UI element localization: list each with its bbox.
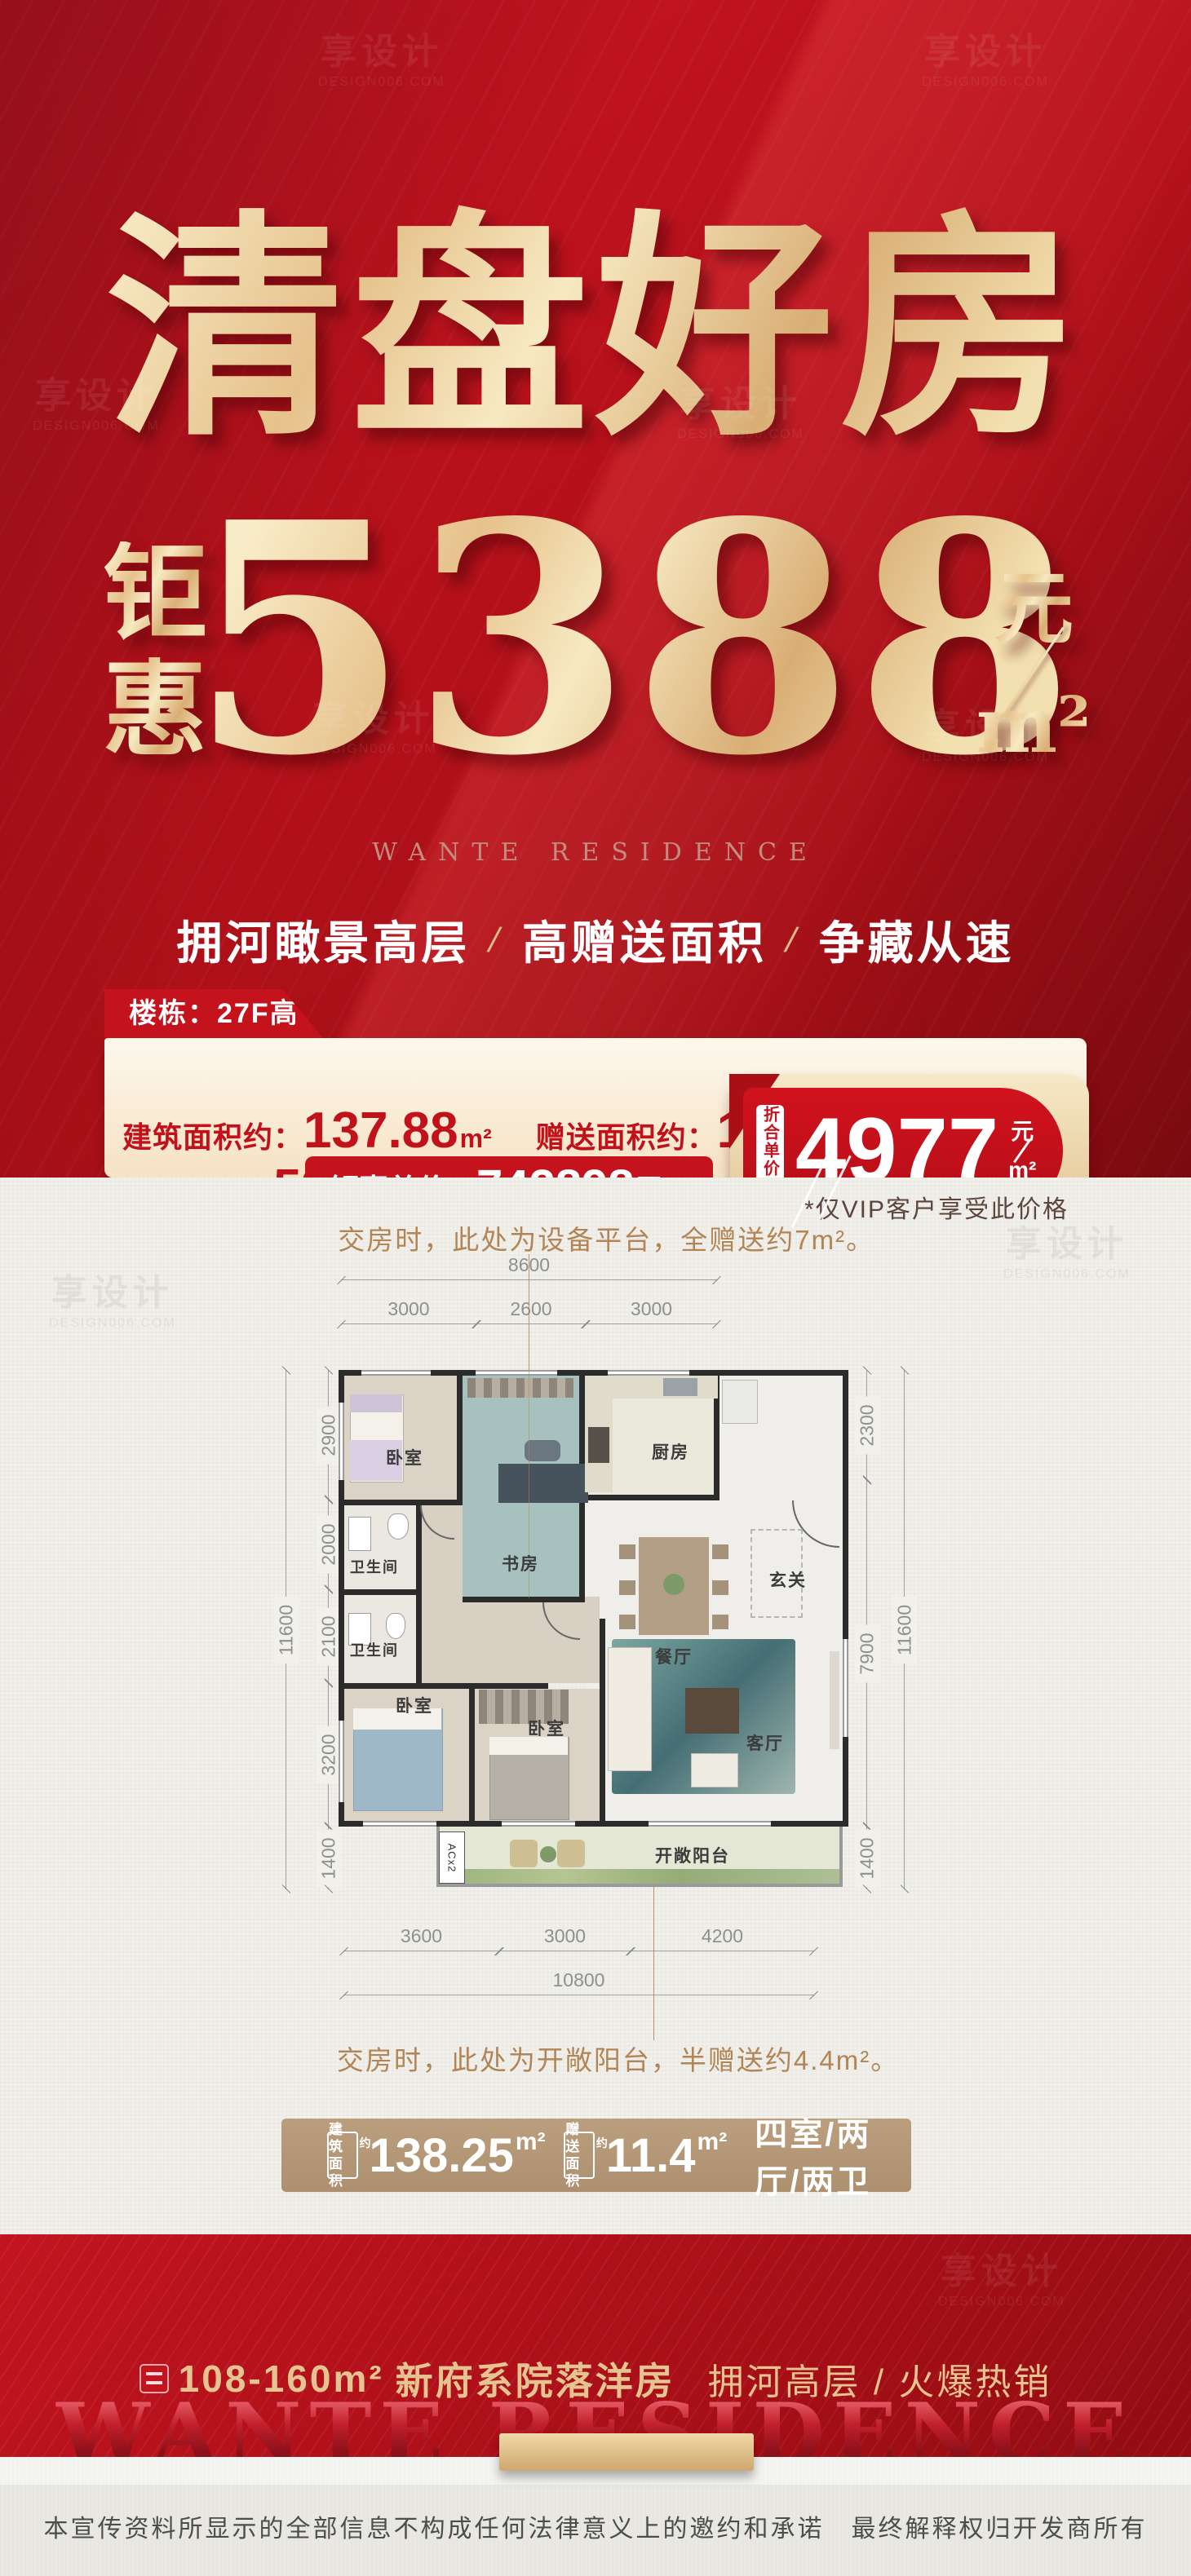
- tagline-separator: /: [781, 921, 804, 960]
- tagline-part: 争藏从速: [819, 907, 1015, 973]
- balcony-chair: [557, 1840, 585, 1867]
- room-label-living: 客厅: [746, 1730, 784, 1755]
- area-summary-bar: 建筑 面积 约 138.25 m² 赠送 面积 约 11.4 m² 四室/两厅/…: [281, 2119, 911, 2192]
- leader-line: [653, 1885, 654, 2040]
- wall: [457, 1370, 463, 1505]
- room-label-bedroom: 卧室: [396, 1693, 433, 1717]
- room-label-hall: 玄关: [769, 1567, 807, 1592]
- chip-line: 面积: [565, 2155, 593, 2190]
- dim-bottom-seg: 3600: [343, 1951, 499, 1951]
- balcony-rail: [839, 1827, 843, 1887]
- room-label-bath: 卫生间: [350, 1556, 399, 1577]
- hero-section: 享设计DESIGN006.COM 享设计DESIGN006.COM 享设计DES…: [0, 0, 1191, 1178]
- sofa: [608, 1647, 652, 1771]
- window: [502, 1821, 575, 1827]
- brand-name: WANTE RESIDENCE: [0, 838, 1191, 867]
- chip-line: 面积: [329, 2155, 356, 2190]
- dim-bottom-seg: 4200: [631, 1951, 814, 1951]
- dining-chair: [619, 1615, 635, 1629]
- balcony-plant: [540, 1846, 556, 1862]
- room-label-bedroom: 卧室: [528, 1716, 565, 1740]
- wall: [344, 1589, 422, 1595]
- wall: [585, 1495, 719, 1500]
- page-title: 清盘好房: [0, 197, 1191, 459]
- dim-right-seg: 2300: [866, 1370, 867, 1480]
- dim-left-seg: 2000: [328, 1500, 329, 1589]
- wall: [463, 1597, 585, 1602]
- dining-chair: [712, 1615, 728, 1629]
- building-label: 楼栋：: [129, 998, 217, 1029]
- dim-left-seg: 3200: [328, 1683, 329, 1827]
- chip-approx: 约: [596, 2136, 608, 2151]
- kitchen-counter: [585, 1376, 718, 1398]
- tagline-separator: /: [485, 921, 507, 960]
- price-unit: 元 m²: [972, 569, 1095, 764]
- building-tab: 楼栋：27F高层: [104, 989, 323, 1038]
- dim-bottom-seg: 3000: [499, 1951, 631, 1951]
- window: [339, 1403, 344, 1480]
- built-area-unit: m²: [516, 2128, 546, 2156]
- coffee-table: [685, 1688, 739, 1734]
- room-label-study: 书房: [502, 1551, 539, 1575]
- room-label-bath: 卫生间: [350, 1639, 399, 1660]
- window: [361, 1370, 431, 1376]
- fridge: [722, 1380, 758, 1424]
- tv-console: [830, 1651, 839, 1749]
- bed-pillow: [350, 1394, 402, 1412]
- watermark: 享设计DESIGN006.COM: [318, 31, 445, 90]
- floorplan: ACx2 卧室 书房 厨房 玄关 餐厅 卫生间 卫生间 卧室 卧室 客厅 开敞阳…: [339, 1370, 848, 1889]
- dim-left-seg: 1400: [328, 1827, 329, 1889]
- dining-chair: [712, 1580, 728, 1595]
- price-info-body: 建筑面积约： 137.88 m² 赠送面积约： 11.4 m² 钜惠单价： 53…: [104, 1038, 1087, 1178]
- tagline-part: 高赠送面积: [522, 907, 767, 973]
- dim-left-overall: 11600: [286, 1370, 286, 1889]
- stove: [588, 1427, 609, 1463]
- desk: [498, 1464, 588, 1503]
- area-chip: 建筑 面积 约: [327, 2132, 358, 2179]
- dim-left-seg: 2100: [328, 1589, 329, 1683]
- room-label-balcony: 开敞阳台: [655, 1843, 730, 1867]
- badge-unit: 元 m²: [1008, 1120, 1036, 1182]
- bookshelf: [467, 1378, 573, 1398]
- wall: [339, 1683, 475, 1689]
- price-info-panel: 楼栋：27F高层 建筑面积约： 137.88 m² 赠送面积约： 11.4 m²…: [104, 989, 1087, 1178]
- ac-label: ACx2: [439, 1831, 465, 1884]
- room-label-dining: 餐厅: [655, 1644, 693, 1668]
- balcony-rail: [436, 1884, 843, 1887]
- price-unit-denominator: m²: [976, 687, 1091, 764]
- wall: [475, 1683, 548, 1689]
- dim-right-overall: 11600: [904, 1370, 905, 1889]
- window: [339, 1721, 344, 1802]
- dim-right-seg: 1400: [866, 1827, 867, 1889]
- dim-bottom-overall: 10800: [343, 1995, 814, 1995]
- toilet: [387, 1513, 409, 1540]
- bath-sink: [348, 1517, 371, 1551]
- dim-left-seg: 2900: [328, 1370, 329, 1500]
- dining-chair: [619, 1544, 635, 1559]
- dim-top-seg: 3000: [341, 1323, 476, 1324]
- room-label-kitchen: 厨房: [652, 1439, 689, 1464]
- wall: [600, 1619, 605, 1827]
- chip-line: 建筑: [329, 2121, 356, 2156]
- wall: [339, 1500, 463, 1505]
- balcony-chair: [510, 1840, 538, 1867]
- dim-right-seg: 7900: [866, 1480, 867, 1827]
- dim-top-seg: 2600: [476, 1323, 586, 1324]
- dining-chair: [712, 1544, 728, 1559]
- plan-note-bottom: 交房时，此处为开敞阳台，半赠送约4.4m²。: [337, 2039, 899, 2078]
- area-label: 建筑面积约：: [122, 1114, 303, 1156]
- gold-plate: [499, 2433, 754, 2471]
- window: [363, 1821, 436, 1827]
- area-chip: 赠送 面积 约: [564, 2132, 595, 2179]
- wall: [469, 1683, 475, 1827]
- chip-approx: 约: [360, 2136, 371, 2151]
- armchair: [691, 1753, 738, 1787]
- disclaimer-text: 本宣传资料所显示的全部信息不构成任何法律意义上的邀约和承诺 最终解释权归开发商所…: [0, 2508, 1191, 2544]
- kitchen-sink: [663, 1378, 697, 1396]
- tagline: 拥河瞰景高层 / 高赠送面积 / 争藏从速: [0, 907, 1191, 973]
- dining-chair: [619, 1580, 635, 1595]
- balcony-planting: [445, 1869, 839, 1884]
- toilet: [386, 1613, 405, 1639]
- gift-area-value: 11.4: [606, 2128, 696, 2183]
- gift-area-unit: m²: [697, 2128, 728, 2156]
- area-value: 137.88: [303, 1102, 458, 1160]
- room-label-bedroom: 卧室: [386, 1445, 423, 1469]
- table-plant: [663, 1574, 684, 1595]
- window: [608, 1370, 689, 1376]
- area-unit: m²: [460, 1124, 492, 1154]
- leader-line: [529, 1254, 529, 1370]
- dim-top-seg: 3000: [586, 1323, 717, 1324]
- price-value: 5388: [189, 481, 1077, 798]
- window: [649, 1821, 771, 1827]
- watermark: 享设计DESIGN006.COM: [922, 31, 1049, 90]
- wall: [843, 1370, 848, 1827]
- chip-line: 赠送: [565, 2121, 593, 2156]
- built-area-value: 138.25: [370, 2128, 514, 2183]
- gift-label: 赠送面积约：: [536, 1114, 717, 1156]
- desk-chair: [525, 1440, 560, 1461]
- layout-text: 四室/两厅/两卫: [755, 2108, 911, 2203]
- window: [843, 1639, 848, 1737]
- window: [476, 1370, 557, 1376]
- price-unit-numerator: 元: [994, 569, 1074, 649]
- tagline-part: 拥河瞰景高层: [176, 907, 470, 973]
